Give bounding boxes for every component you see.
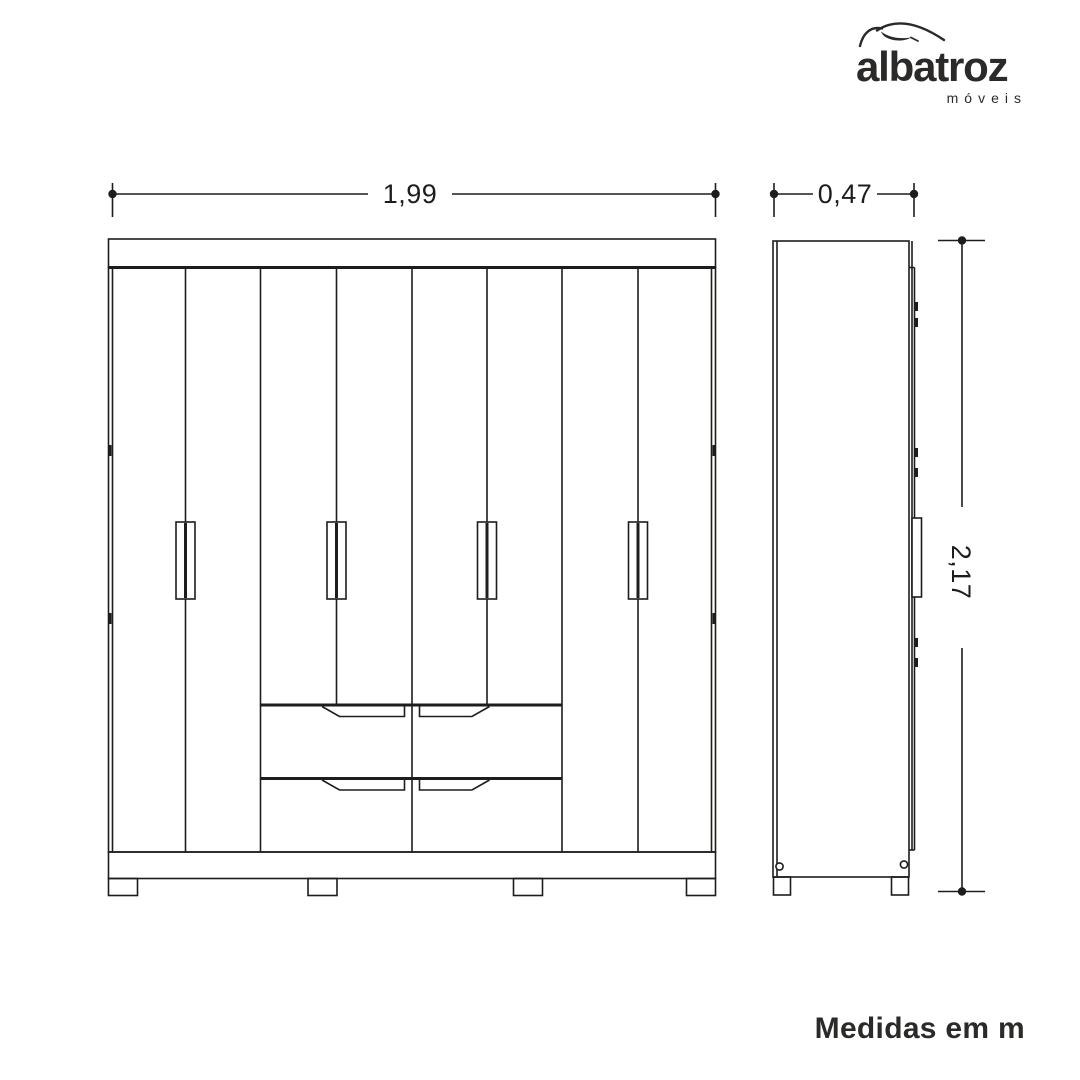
foot xyxy=(687,879,716,896)
drawer-recess-pull xyxy=(420,780,490,790)
hinge-mark xyxy=(915,448,919,457)
base-rail xyxy=(109,852,716,879)
front-view xyxy=(109,239,716,896)
dimension-endpoint xyxy=(958,236,966,244)
hinge-mark xyxy=(915,302,919,311)
dimension-endpoint xyxy=(711,190,719,198)
dimension-endpoint xyxy=(108,190,116,198)
dimension-endpoint xyxy=(770,190,778,198)
hinge-mark xyxy=(915,638,919,647)
dimension-width-label: 1,99 xyxy=(350,177,470,211)
crown-panel xyxy=(109,239,716,268)
drawer-recess-pull xyxy=(322,707,405,717)
dimension-endpoint xyxy=(910,190,918,198)
hinge-mark xyxy=(915,318,919,327)
hinge-mark xyxy=(915,658,919,667)
brand-name: albatroz xyxy=(856,46,1028,88)
brand-subtitle: móveis xyxy=(856,90,1028,106)
side-panel xyxy=(773,241,909,877)
drawer-recess-pull xyxy=(420,707,490,717)
drawer-recess-pull xyxy=(322,780,405,790)
foot xyxy=(892,877,909,895)
foot xyxy=(514,879,543,896)
foot xyxy=(308,879,337,896)
dimension-height-label: 2,17 xyxy=(944,512,978,632)
leveling-glide xyxy=(776,863,783,870)
dimension-depth-label: 0,47 xyxy=(785,177,905,211)
side-view xyxy=(773,241,922,895)
hinge-mark xyxy=(915,468,919,477)
dimension-endpoint xyxy=(958,887,966,895)
wardrobe-technical-drawing xyxy=(0,0,1080,1080)
page: 1,99 0,47 2,17 albatroz móveis Medidas e… xyxy=(0,0,1080,1080)
measurement-unit-note: Medidas em m xyxy=(815,1012,1025,1046)
brand-logo: albatroz móveis xyxy=(856,20,1028,106)
foot xyxy=(109,879,138,896)
leveling-glide xyxy=(900,861,907,868)
foot xyxy=(774,877,791,895)
handle-side-profile xyxy=(912,518,922,597)
